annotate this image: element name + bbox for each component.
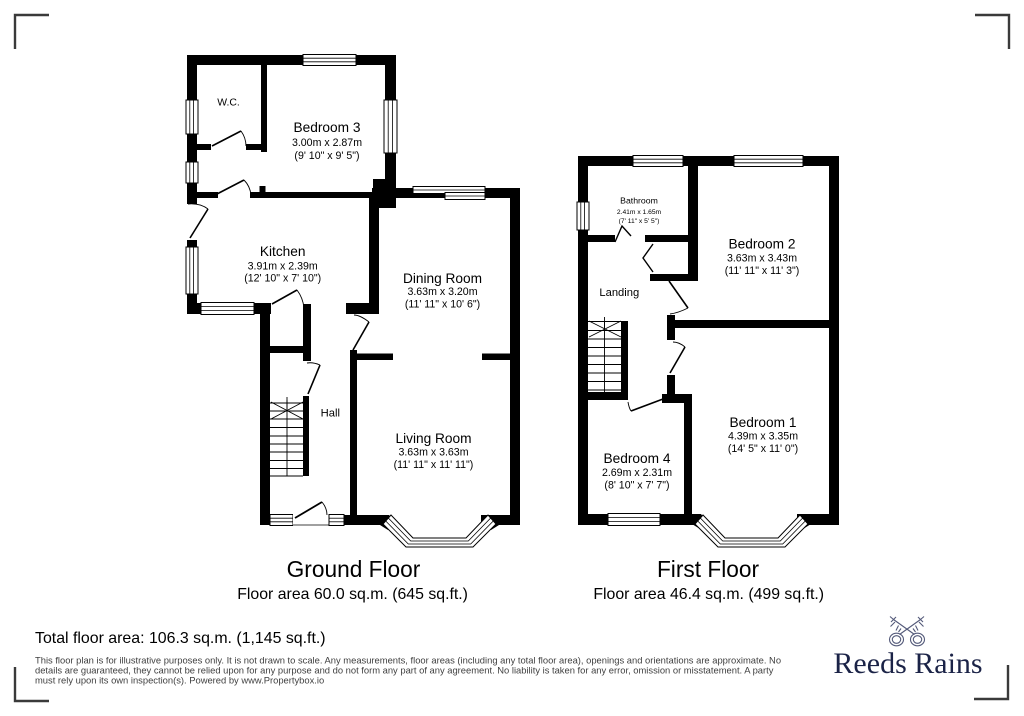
svg-text:Bathroom: Bathroom [620, 195, 658, 205]
svg-text:Kitchen: Kitchen [260, 244, 306, 259]
svg-text:Total floor area: 106.3 sq.m.: Total floor area: 106.3 sq.m. (1,145 sq.… [35, 630, 326, 647]
svg-text:First Floor: First Floor [657, 556, 760, 582]
svg-text:must rely upon its own inspect: must rely upon its own inspection(s). Po… [35, 675, 324, 686]
svg-text:Reeds Rains: Reeds Rains [833, 647, 982, 680]
svg-text:Living Room: Living Room [395, 431, 471, 446]
svg-text:2.41m x 1.65m: 2.41m x 1.65m [617, 209, 662, 216]
svg-text:Floor area 60.0 sq.m. (645 sq.: Floor area 60.0 sq.m. (645 sq.ft.) [237, 586, 468, 603]
svg-text:3.63m x 3.63m: 3.63m x 3.63m [398, 447, 468, 459]
svg-text:Bedroom 4: Bedroom 4 [604, 451, 671, 466]
svg-text:3.63m x 3.43m: 3.63m x 3.43m [727, 253, 797, 265]
svg-text:Landing: Landing [599, 287, 639, 299]
svg-text:Bedroom 3: Bedroom 3 [294, 120, 361, 135]
svg-text:Floor area 46.4 sq.m. (499 sq.: Floor area 46.4 sq.m. (499 sq.ft.) [593, 586, 824, 603]
svg-text:(9' 10" x 9' 5"): (9' 10" x 9' 5") [294, 150, 359, 162]
svg-text:4.39m x 3.35m: 4.39m x 3.35m [728, 431, 798, 443]
svg-text:(11' 11" x 11' 3"): (11' 11" x 11' 3") [725, 265, 800, 277]
svg-text:Hall: Hall [321, 408, 340, 420]
svg-text:3.91m x 2.39m: 3.91m x 2.39m [248, 261, 318, 273]
svg-text:(7' 11" x 5' 5"): (7' 11" x 5' 5") [619, 218, 660, 225]
svg-text:Ground Floor: Ground Floor [287, 556, 421, 582]
svg-text:(12' 10" x 7' 10"): (12' 10" x 7' 10") [244, 273, 321, 285]
svg-text:3.00m x 2.87m: 3.00m x 2.87m [292, 137, 362, 149]
svg-text:(11' 11" x 11' 11"): (11' 11" x 11' 11") [394, 459, 474, 471]
svg-text:(14' 5" x 11' 0"): (14' 5" x 11' 0") [728, 443, 798, 455]
svg-text:W.C.: W.C. [217, 97, 240, 108]
svg-text:Dining Room: Dining Room [403, 271, 482, 286]
svg-text:Bedroom 2: Bedroom 2 [729, 237, 796, 252]
svg-text:(11' 11" x 10' 6"): (11' 11" x 10' 6") [405, 299, 480, 311]
svg-text:(8' 10" x 7' 7"): (8' 10" x 7' 7") [604, 480, 669, 492]
svg-text:2.69m x 2.31m: 2.69m x 2.31m [602, 467, 672, 479]
svg-text:3.63m x 3.20m: 3.63m x 3.20m [407, 286, 477, 298]
svg-text:Bedroom 1: Bedroom 1 [730, 415, 797, 430]
